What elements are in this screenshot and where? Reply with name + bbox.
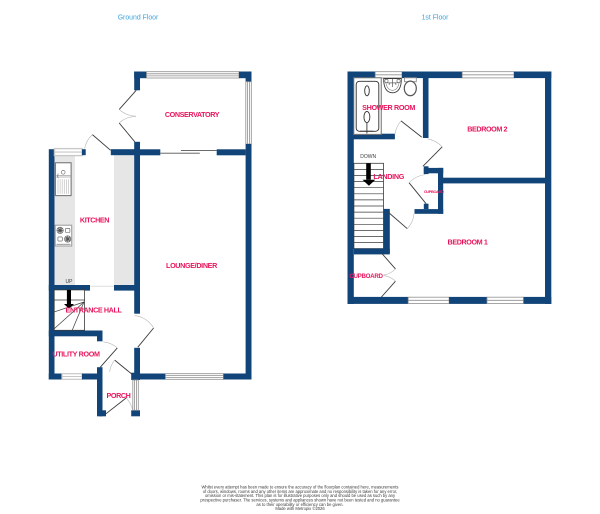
svg-text:1st Floor: 1st Floor [422, 14, 450, 21]
svg-text:LANDING: LANDING [373, 172, 404, 181]
svg-text:BEDROOM 2: BEDROOM 2 [467, 125, 507, 134]
svg-text:BEDROOM 1: BEDROOM 1 [448, 237, 488, 246]
svg-text:CUPBOARD: CUPBOARD [424, 189, 444, 194]
svg-text:CUPBOARD: CUPBOARD [349, 273, 383, 280]
svg-text:CONSERVATORY: CONSERVATORY [165, 110, 220, 119]
svg-text:DOWN: DOWN [360, 154, 376, 160]
svg-text:UP: UP [66, 279, 74, 285]
svg-text:Ground Floor: Ground Floor [118, 14, 159, 21]
svg-text:PORCH: PORCH [107, 391, 131, 400]
svg-text:KITCHEN: KITCHEN [80, 216, 109, 225]
svg-text:LOUNGE/DINER: LOUNGE/DINER [166, 261, 218, 270]
svg-text:ENTRANCE HALL: ENTRANCE HALL [66, 306, 123, 315]
svg-text:Made with Metropix ©2026: Made with Metropix ©2026 [275, 506, 325, 511]
svg-text:UTILITY ROOM: UTILITY ROOM [52, 350, 100, 359]
svg-text:SHOWER ROOM: SHOWER ROOM [362, 103, 415, 112]
